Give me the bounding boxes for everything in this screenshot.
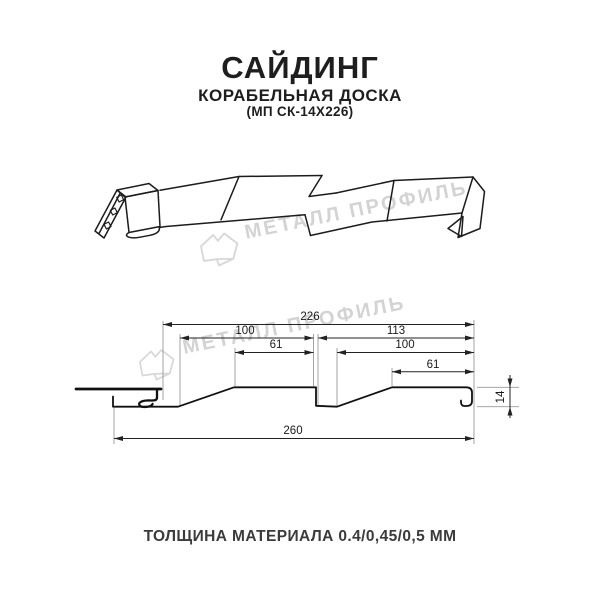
dim-total-width: 260 [270, 425, 316, 437]
dim-right-pitch: 113 [373, 325, 419, 337]
material-thickness-note: ТОЛЩИНА МАТЕРИАЛА 0.4/0,45/0,5 ММ [0, 528, 600, 546]
product-drawing-page: САЙДИНГ КОРАБЕЛЬНАЯ ДОСКА (МП СК-14Х226)… [0, 0, 600, 600]
dim-right-flat: 61 [410, 359, 456, 371]
dim-profile-height: 14 [495, 374, 507, 420]
lock-seam [139, 390, 157, 407]
profile-cross-section [76, 387, 472, 407]
profile-3d-view [95, 176, 485, 239]
dim-overall-width: 226 [287, 311, 333, 323]
dim-left-flat: 61 [253, 339, 299, 351]
dim-left-pitch: 100 [222, 325, 268, 337]
dim-right-inner: 100 [382, 339, 428, 351]
siding-profile-drawing [0, 0, 600, 600]
extension-lines [114, 320, 519, 444]
